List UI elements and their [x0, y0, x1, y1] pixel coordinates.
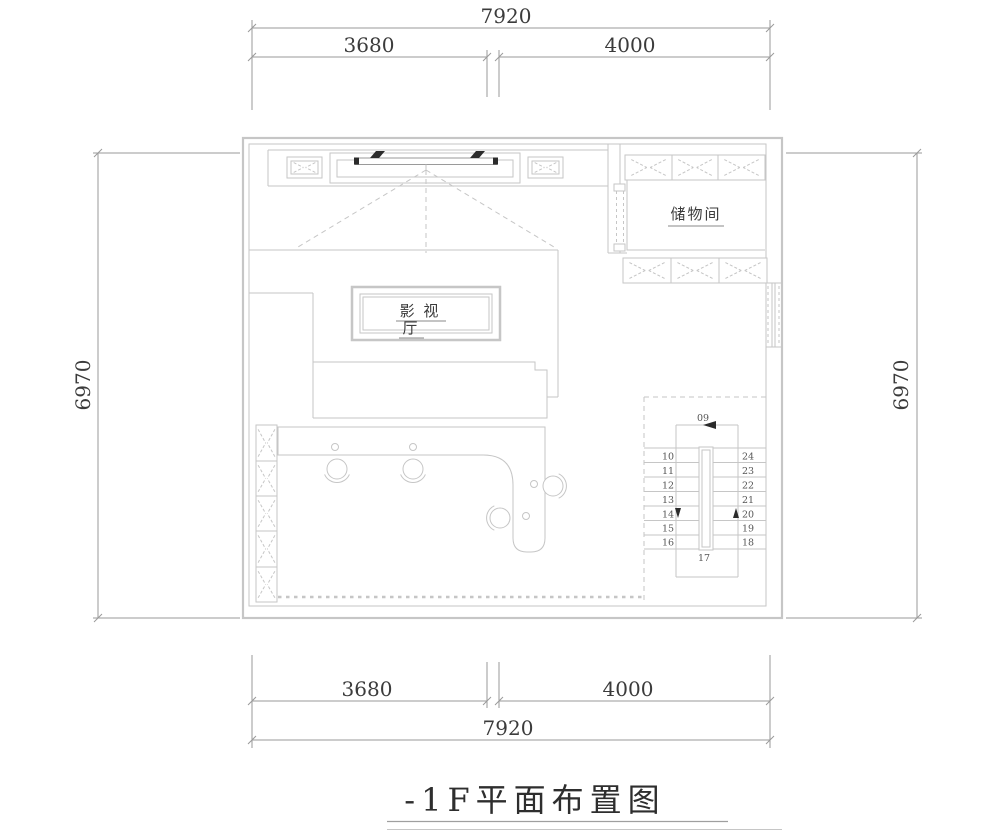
- bar-stool-icon: [487, 506, 510, 530]
- stair-step: 13: [662, 495, 674, 506]
- bar-counter-top: [278, 427, 545, 552]
- theater-label-box: 影 视 厅: [352, 287, 500, 340]
- dimension-top: 7920 3680 4000: [248, 4, 774, 110]
- stair-step: 15: [662, 524, 674, 535]
- storage-door-icon: [614, 184, 625, 251]
- bar-stool-icon: [401, 459, 426, 483]
- bar-stool-icon: [325, 459, 350, 483]
- window-right-icon: [766, 283, 782, 347]
- floor-plan-page: 7920 3680 4000 6970 6970 3680 4: [0, 0, 1000, 834]
- stair-step: 20: [742, 510, 754, 521]
- sofa: [313, 362, 547, 418]
- theater-screen-wall: [268, 150, 608, 253]
- dim-bottom-left: 3680: [342, 677, 393, 701]
- dimension-bottom: 3680 4000 7920: [248, 655, 774, 748]
- drawing-title-block: -1F平面布置图: [387, 781, 782, 830]
- projection-screen-icon: [330, 151, 520, 183]
- stair-step: 14: [662, 510, 674, 521]
- stair-step-landing: 17: [698, 553, 710, 564]
- bar-stool-icon: [543, 474, 566, 498]
- dimension-left: 6970: [71, 149, 240, 622]
- dim-bottom-right: 4000: [603, 677, 654, 701]
- dim-left-side: 6970: [71, 360, 95, 411]
- stair-step: 18: [742, 538, 754, 549]
- dim-top-right: 4000: [605, 33, 656, 57]
- stair-step: 12: [662, 481, 674, 492]
- stair-step: 16: [662, 538, 674, 549]
- stair-step: 23: [742, 466, 754, 477]
- storage-room-label: 储物间: [670, 205, 721, 223]
- storage-shelf-top: [625, 155, 765, 180]
- stair-step: 22: [742, 481, 754, 492]
- theater-room-label-line2: 厅: [402, 319, 419, 337]
- stair-steps-left: 10 11 12 13 14 15 16: [662, 452, 674, 549]
- speaker-right-icon: [528, 157, 563, 178]
- storage-shelf-bottom: [623, 258, 767, 283]
- stair-steps-right: 24 23 22 21 20 19 18: [742, 452, 754, 549]
- theater-room-label-line1: 影 视: [400, 302, 441, 320]
- stair-step: 21: [742, 495, 754, 506]
- dim-top-total: 7920: [481, 4, 532, 28]
- stair-step: 11: [662, 466, 674, 477]
- bar-counter: [278, 427, 566, 552]
- stair-step-entry: 09: [697, 413, 709, 424]
- dim-bottom-total: 7920: [483, 716, 534, 740]
- dim-right-side: 6970: [889, 360, 913, 411]
- dimension-right: 6970: [786, 149, 922, 622]
- storage-room: 储物间: [614, 155, 767, 283]
- stair-step: 19: [742, 524, 754, 535]
- dim-top-left: 3680: [344, 33, 395, 57]
- stair-step: 10: [662, 452, 674, 463]
- staircase: 09 10 11 12 13 14 15 16 24 23 22 21 20 1…: [644, 397, 766, 604]
- stair-railing: [699, 447, 713, 550]
- drawing-title: -1F平面布置图: [404, 781, 665, 819]
- wine-cabinet-strip: [256, 425, 277, 602]
- speaker-left-icon: [287, 157, 322, 178]
- floor-plan-canvas: 7920 3680 4000 6970 6970 3680 4: [0, 0, 1000, 834]
- stair-step: 24: [742, 452, 754, 463]
